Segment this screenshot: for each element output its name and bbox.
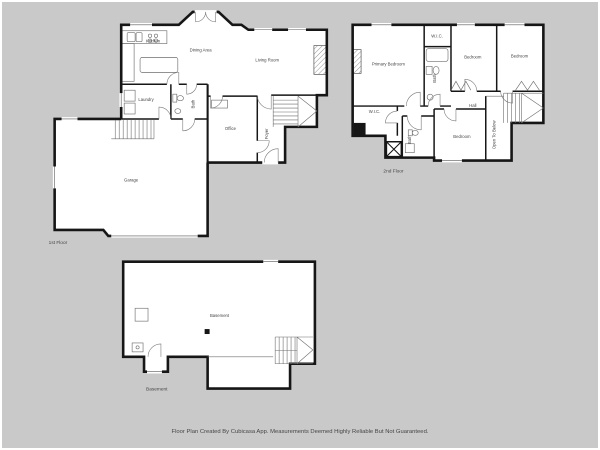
first-floor-plan: KitchenDining AreaLiving RoomLaundryBath… xyxy=(49,12,327,246)
room-label: W.I.C. xyxy=(369,109,381,114)
room-label: Basement xyxy=(210,313,230,318)
room-label: Primary Bedroom xyxy=(372,61,406,66)
room-label: Dining Area xyxy=(190,48,213,53)
room-label: Open To Below xyxy=(492,120,497,150)
room-label: Bath xyxy=(191,99,196,108)
room-label: Bedroom xyxy=(464,54,482,59)
disclaimer-text: Floor Plan Created By Cubicasa App. Meas… xyxy=(172,429,429,435)
second-floor-plan: Primary BedroomW.I.C.BathBedroomBedroomH… xyxy=(353,25,544,175)
room-label: Bedroom xyxy=(453,134,471,139)
room-label: Kitchen xyxy=(146,39,161,44)
radiator xyxy=(353,50,361,74)
room-label: Hall xyxy=(469,103,476,108)
room-label: Living Room xyxy=(255,57,279,62)
room-label: Foyer xyxy=(264,128,269,139)
support-column xyxy=(205,329,210,334)
chimney xyxy=(354,123,366,135)
floor-label-1st: 1st Floor xyxy=(49,240,68,246)
basement-floor-plan: Basement Basement xyxy=(123,262,315,393)
fireplace xyxy=(314,46,326,75)
room-label: Bath xyxy=(407,135,412,144)
floor-plan-page: KitchenDining AreaLiving RoomLaundryBath… xyxy=(2,2,598,448)
room-label: Bedroom xyxy=(511,54,529,59)
floor-plan-image: KitchenDining AreaLiving RoomLaundryBath… xyxy=(2,2,598,448)
floor-label-2nd: 2nd Floor xyxy=(383,168,404,174)
room-label: W.I.C. xyxy=(431,34,443,39)
basement-area xyxy=(123,262,315,389)
second-floor-area xyxy=(353,25,544,161)
room-label: Laundry xyxy=(138,97,154,102)
room-label: Bath xyxy=(432,73,437,82)
basement-room-labels: Basement xyxy=(210,313,230,318)
floor-label-basement: Basement xyxy=(146,387,168,393)
room-label: Office xyxy=(225,126,237,131)
room-label: Garage xyxy=(124,177,139,182)
